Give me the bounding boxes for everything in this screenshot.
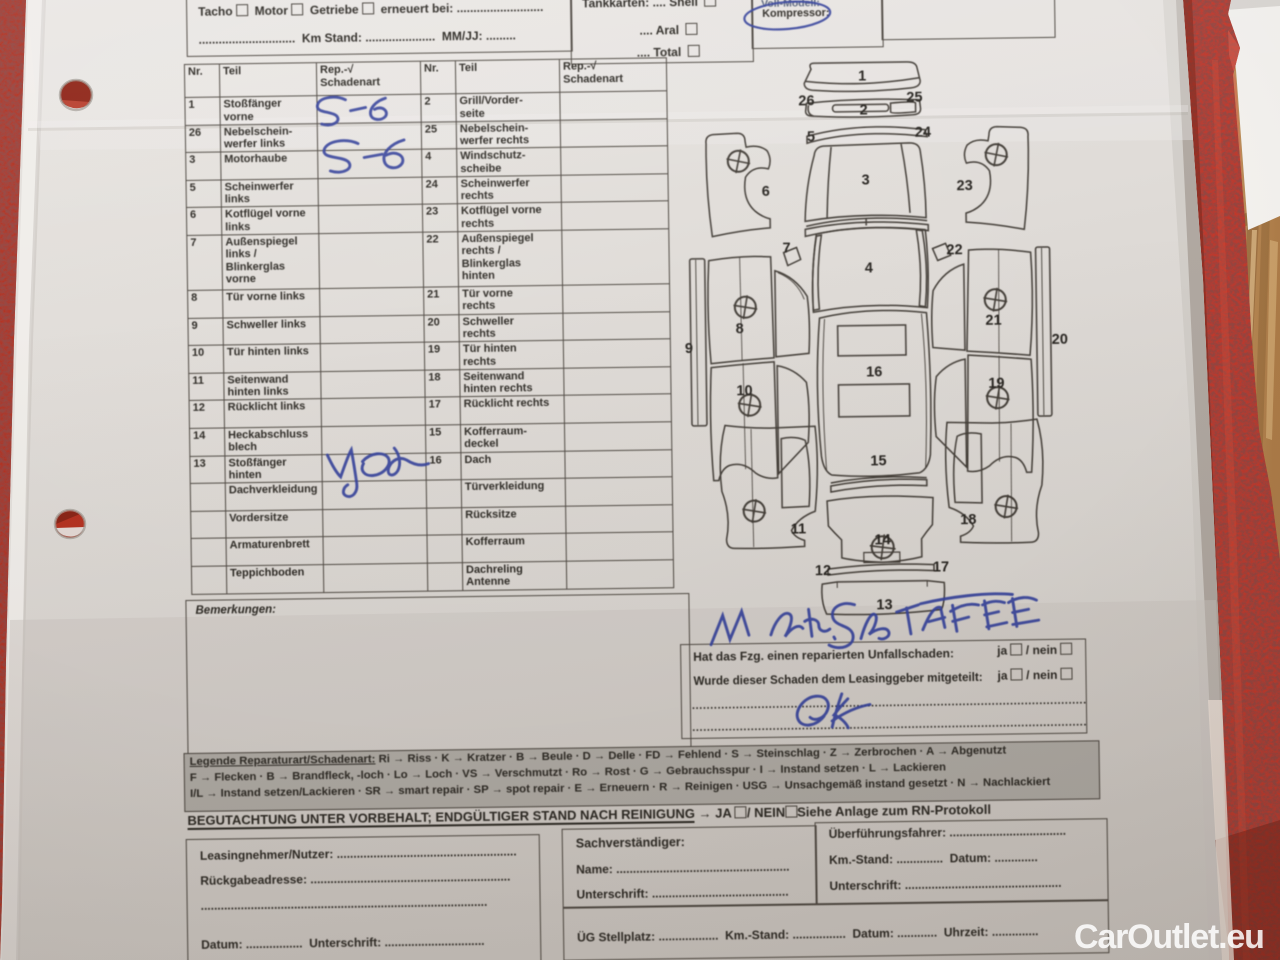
svg-text:9: 9 — [685, 341, 693, 357]
svg-text:11: 11 — [791, 521, 807, 537]
svg-text:1: 1 — [858, 68, 866, 84]
svg-text:8: 8 — [736, 321, 744, 337]
svg-text:16: 16 — [866, 364, 882, 380]
svg-text:26: 26 — [798, 93, 814, 109]
svg-text:17: 17 — [933, 559, 949, 575]
svg-text:5: 5 — [807, 129, 815, 145]
svg-text:18: 18 — [960, 512, 976, 528]
svg-text:3: 3 — [861, 172, 869, 188]
svg-text:4: 4 — [865, 260, 873, 276]
svg-text:12: 12 — [815, 563, 831, 579]
svg-text:22: 22 — [946, 242, 962, 258]
svg-text:6: 6 — [762, 184, 770, 200]
svg-text:13: 13 — [876, 597, 892, 613]
svg-text:14: 14 — [874, 532, 890, 548]
svg-text:25: 25 — [906, 90, 922, 106]
svg-text:23: 23 — [956, 178, 972, 194]
svg-text:19: 19 — [988, 376, 1004, 392]
svg-text:10: 10 — [736, 383, 752, 399]
svg-text:24: 24 — [915, 125, 931, 141]
svg-text:20: 20 — [1052, 332, 1068, 348]
svg-text:21: 21 — [985, 313, 1001, 329]
svg-text:7: 7 — [782, 241, 790, 257]
svg-text:15: 15 — [870, 453, 886, 469]
svg-text:2: 2 — [859, 102, 867, 118]
